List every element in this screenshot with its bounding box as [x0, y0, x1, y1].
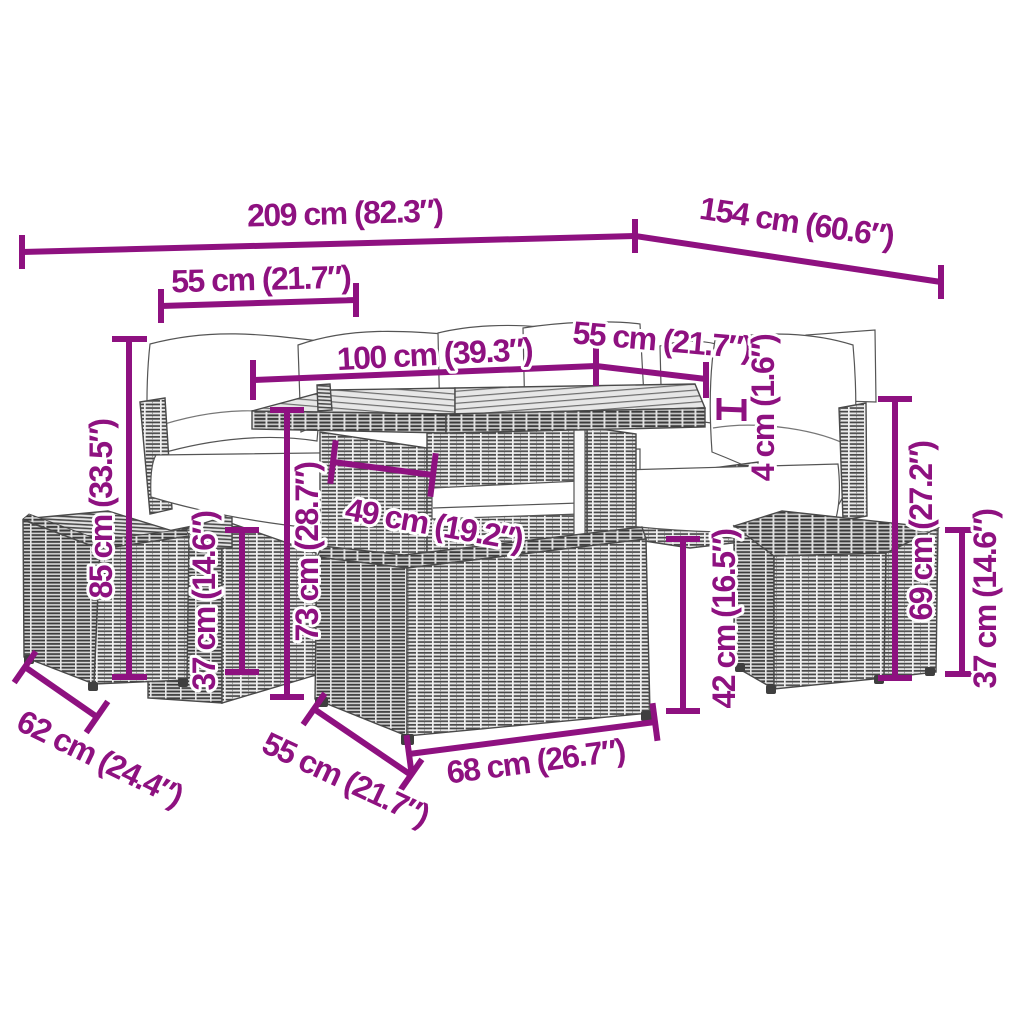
svg-text:85 cm (33.5″): 85 cm (33.5″)	[83, 419, 119, 599]
svg-text:69 cm (27.2″): 69 cm (27.2″)	[903, 441, 939, 621]
svg-text:209 cm (82.3″): 209 cm (82.3″)	[247, 192, 444, 233]
svg-text:73 cm (28.7″): 73 cm (28.7″)	[289, 462, 325, 642]
svg-text:37 cm (14.6″): 37 cm (14.6″)	[186, 511, 222, 691]
svg-text:55 cm (21.7″): 55 cm (21.7″)	[171, 259, 352, 300]
svg-text:37 cm (14.6″): 37 cm (14.6″)	[967, 509, 1003, 689]
svg-text:42 cm (16.5″): 42 cm (16.5″)	[706, 529, 742, 709]
svg-text:4 cm (1.6″): 4 cm (1.6″)	[745, 334, 781, 481]
